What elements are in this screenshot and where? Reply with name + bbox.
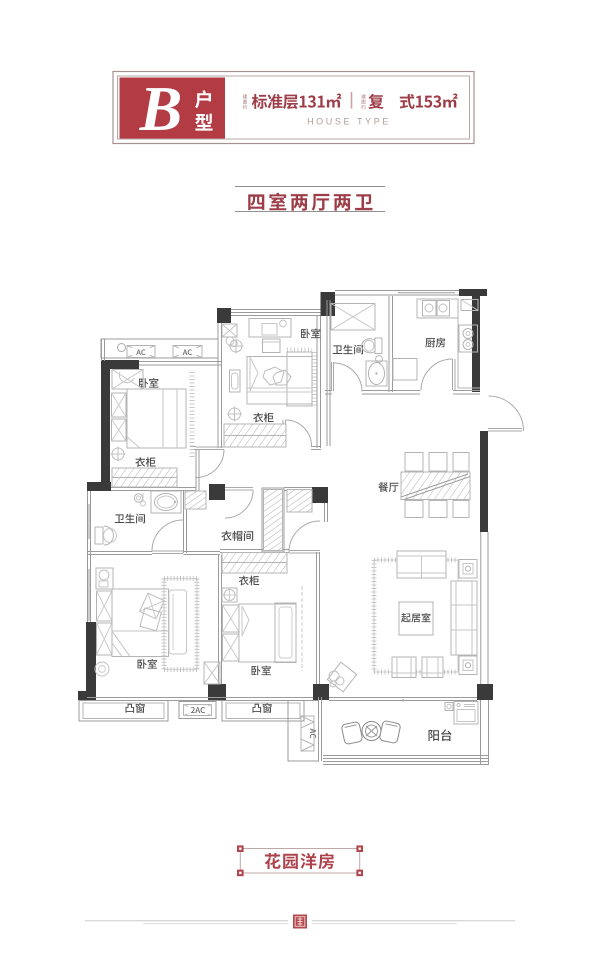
svg-text:B: B: [139, 73, 183, 144]
svg-text:HOUSE TYPE: HOUSE TYPE: [307, 117, 391, 127]
